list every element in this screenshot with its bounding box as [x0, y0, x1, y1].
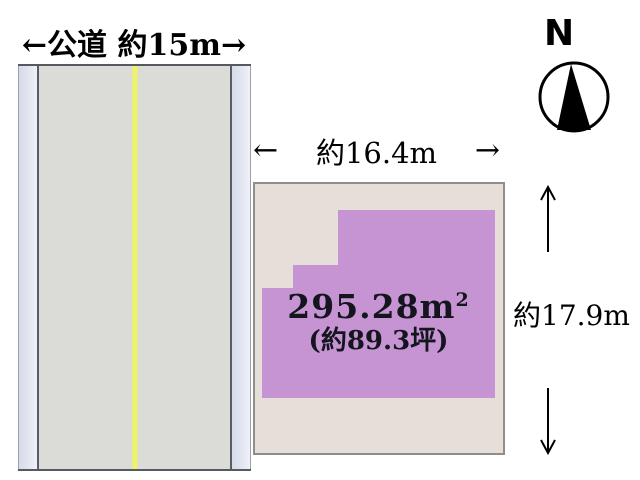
- road-label: ←公道 約15m→: [6, 20, 262, 64]
- up-arrow-icon: [539, 184, 557, 254]
- plot-block: 295.28m2 (約89.3坪): [253, 182, 505, 455]
- road-sidewalk-left: [18, 66, 39, 469]
- road-sidewalk-right: [230, 66, 251, 469]
- compass-rose-icon: [535, 59, 613, 137]
- width-dimension: ← 約16.4m →: [253, 134, 500, 168]
- area-exponent: 2: [455, 289, 469, 311]
- down-arrow-icon: [539, 388, 557, 456]
- site-plan-diagram: ←公道 約15m→ ← 約16.4m → 295.28m2 (約89.3坪) 約…: [0, 0, 640, 480]
- north-label: N: [544, 16, 574, 52]
- height-dimension-label: 約17.9m: [513, 294, 630, 334]
- road: [18, 64, 251, 471]
- area-tsubo-label: (約89.3坪): [262, 326, 495, 357]
- arrow-left-icon: ←: [253, 136, 278, 166]
- area-label: 295.28m2 (約89.3坪): [262, 288, 495, 357]
- road-center-line: [132, 66, 137, 469]
- road-surface: [39, 66, 230, 469]
- arrow-right-icon: →: [475, 136, 500, 166]
- area-sqm-label: 295.28m2: [262, 288, 495, 326]
- width-dimension-label: 約16.4m: [316, 130, 437, 172]
